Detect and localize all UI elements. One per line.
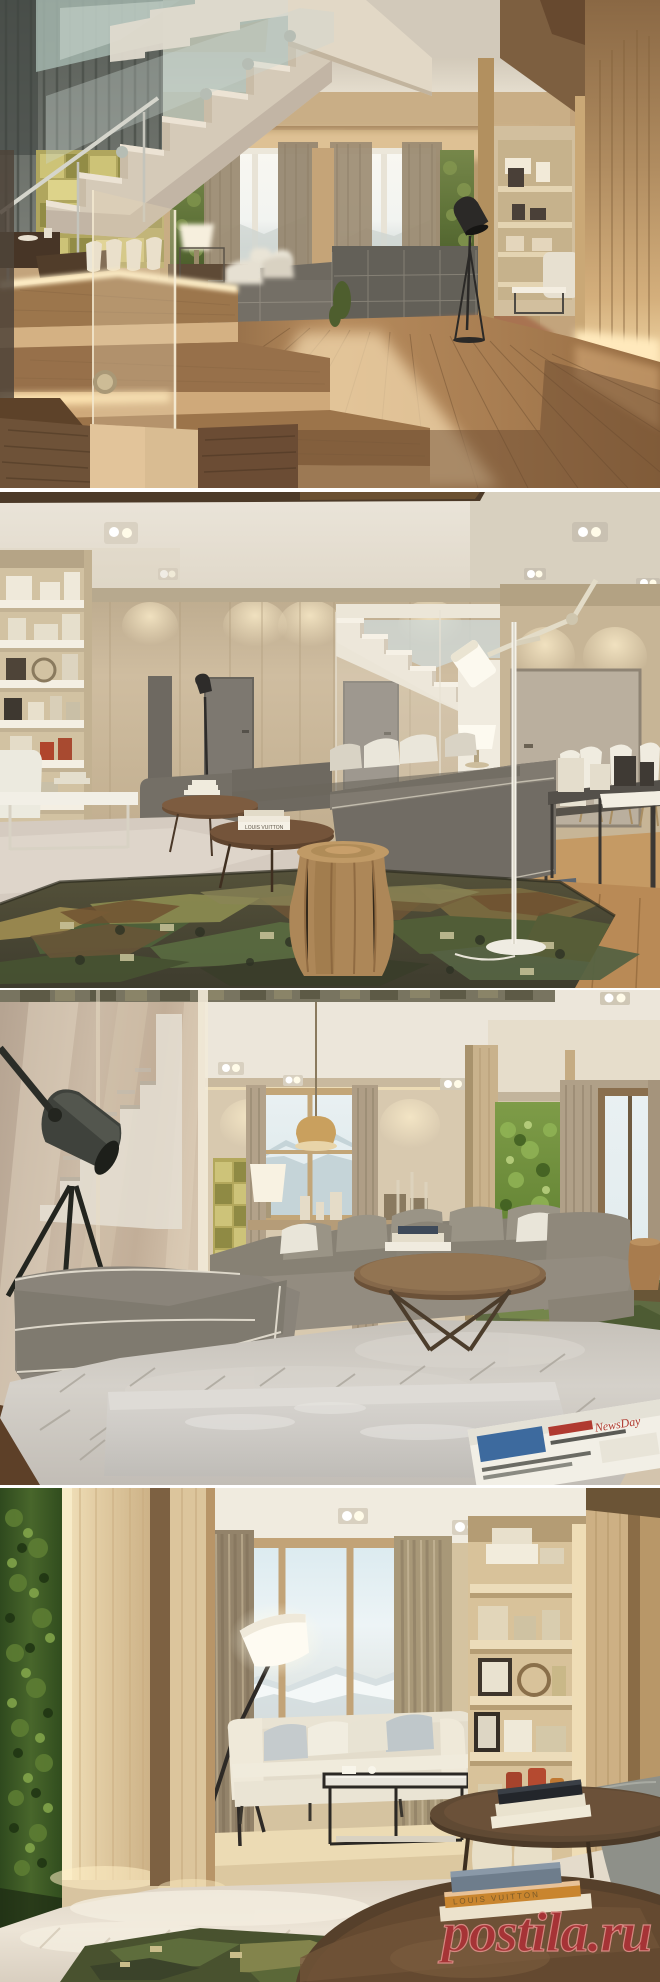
svg-text:postila.ru: postila.ru	[438, 1902, 651, 1964]
svg-text:LOUIS VUITTON: LOUIS VUITTON	[245, 825, 284, 831]
